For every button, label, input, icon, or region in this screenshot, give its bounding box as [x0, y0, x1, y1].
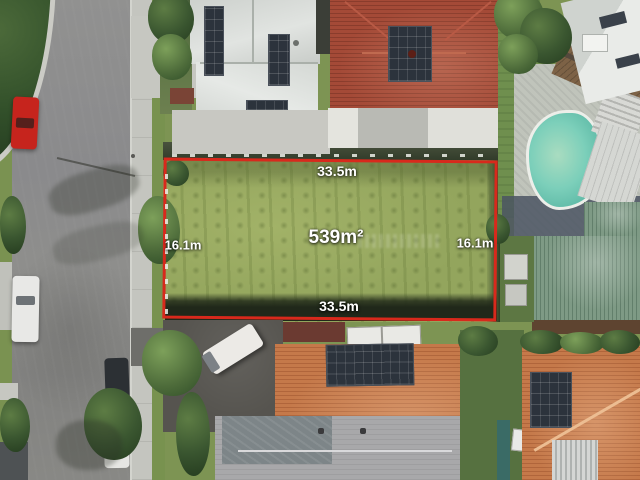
tree-shadow	[56, 420, 122, 470]
garden-shed	[505, 284, 527, 306]
dimension-label-bottom: 33.5m	[319, 298, 359, 314]
solar-panels	[326, 343, 415, 387]
hedge	[458, 326, 498, 356]
area-label: 539m²	[309, 227, 364, 249]
garden-shed	[504, 254, 528, 280]
lap-pool	[497, 420, 510, 480]
skylight	[582, 34, 608, 52]
tree	[0, 196, 26, 254]
hedge	[600, 330, 640, 354]
tree	[142, 330, 202, 396]
white-ute	[11, 276, 39, 342]
solar-panels	[204, 6, 224, 76]
solar-panels	[530, 372, 572, 428]
garden-shed	[170, 88, 194, 104]
roof-ridge	[252, 0, 254, 62]
dimension-label-top: 33.5m	[317, 163, 357, 179]
white-ute-windshield	[16, 296, 35, 305]
roof-vent	[293, 40, 299, 46]
hedge	[520, 330, 564, 354]
palm-tree	[498, 34, 538, 74]
brick-wall	[283, 322, 345, 342]
dimension-label-left: 16.1m	[165, 238, 202, 253]
footpath-left	[0, 262, 12, 330]
chimney	[408, 50, 416, 58]
roof-vent	[360, 428, 366, 434]
aerial-photo: 33.5m 539m² 16.1m 16.1m 33.5m	[0, 0, 640, 480]
green-metal-roof	[532, 236, 640, 324]
front-fence-posts	[172, 154, 490, 157]
corrugated-garage-roof	[552, 440, 598, 480]
hedge	[560, 332, 604, 354]
tree	[0, 398, 30, 452]
rear-garage-paving	[328, 108, 500, 148]
tree	[152, 34, 192, 80]
solar-panels	[268, 34, 290, 86]
roof-vent	[318, 428, 324, 434]
power-pole	[131, 154, 135, 158]
red-car-windshield	[16, 118, 34, 129]
concrete-courtyard	[172, 110, 330, 154]
faint-watermark	[358, 234, 442, 248]
dimension-label-right: 16.1m	[457, 236, 494, 251]
tree-row	[176, 392, 210, 476]
roof-ridge	[238, 450, 452, 452]
grey-roof-dark-section	[222, 416, 332, 464]
